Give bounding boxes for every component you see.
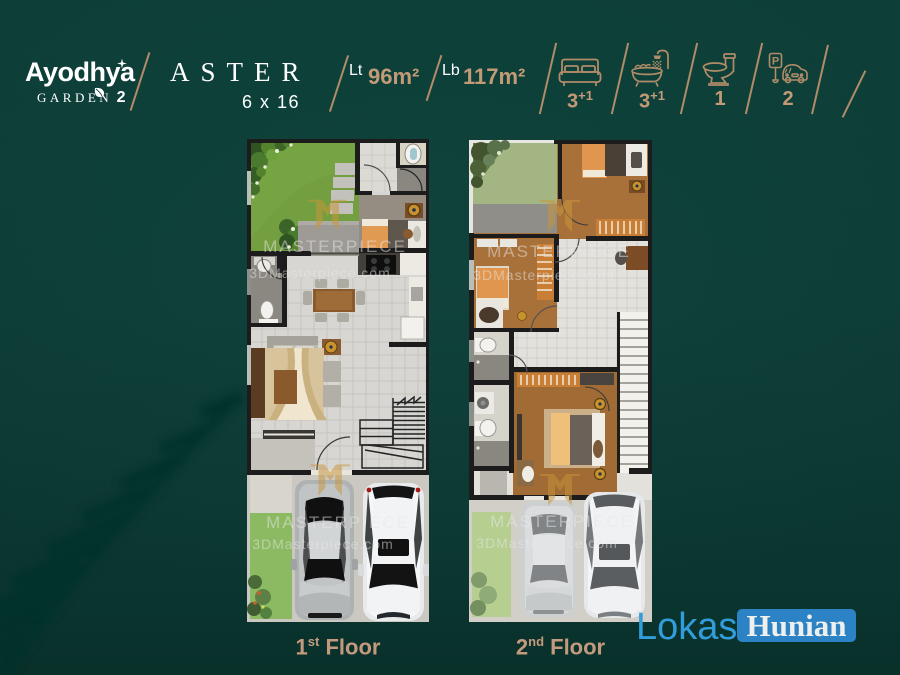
svg-text:MASTERPIECE: MASTERPIECE <box>487 242 631 261</box>
svg-text:3DMasterpiece.com: 3DMasterpiece.com <box>249 265 391 281</box>
svg-text:P: P <box>772 56 779 68</box>
svg-text:MASTERPIECE: MASTERPIECE <box>266 513 410 532</box>
svg-text:MASTERPIECE: MASTERPIECE <box>263 237 407 256</box>
svg-text:3DMasterpiece.com: 3DMasterpiece.com <box>473 267 615 283</box>
svg-text:3DMasterpiece.com: 3DMasterpiece.com <box>252 536 394 552</box>
svg-text:MASTERPIECE: MASTERPIECE <box>490 512 634 531</box>
svg-text:3DMasterpiece.com: 3DMasterpiece.com <box>476 535 618 551</box>
